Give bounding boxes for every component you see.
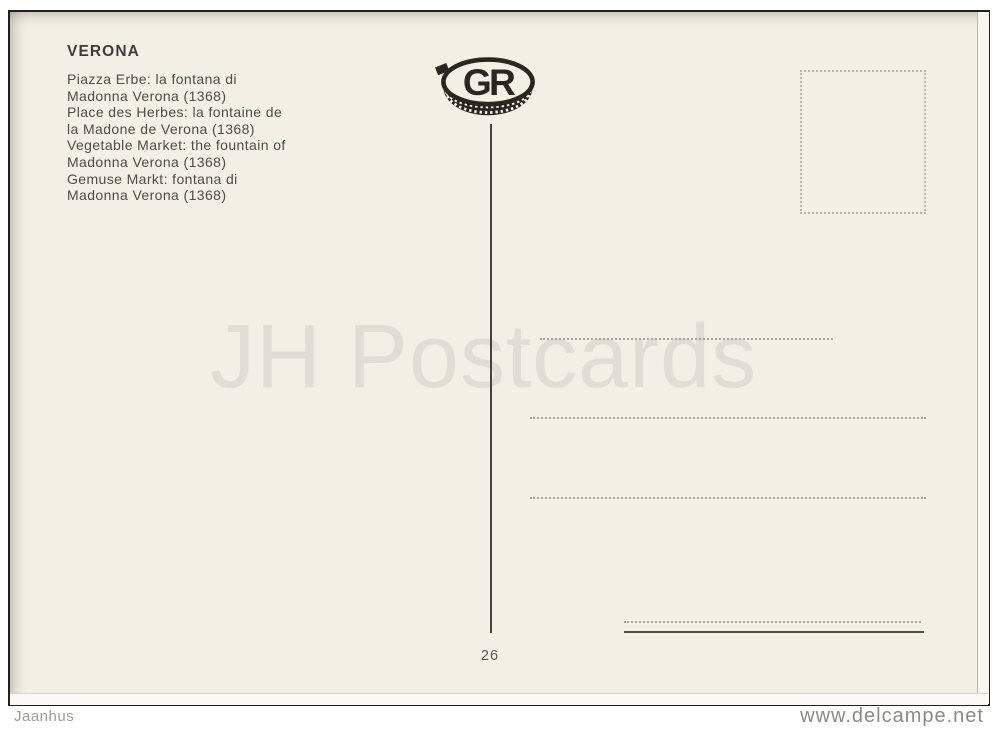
- caption-line-english-2: Madonna Verona (1368): [67, 154, 286, 171]
- address-line-4-dotted: [624, 621, 921, 623]
- card-title: VERONA: [67, 43, 286, 61]
- caption-line-french-1: Place des Herbes: la fontaine de: [67, 104, 286, 121]
- caption-line-italian-2: Madonna Verona (1368): [67, 88, 286, 105]
- caption-line-german-2: Madonna Verona (1368): [67, 187, 286, 204]
- caption-block: VERONA Piazza Erbe: la fontana di Madonn…: [67, 43, 286, 204]
- caption-line-english-1: Vegetable Market: the fountain of: [67, 137, 286, 154]
- publisher-arena-logo-icon: GR: [434, 54, 542, 132]
- scan-gap-bottom: [10, 693, 988, 705]
- center-divider-line: [490, 124, 492, 633]
- address-line-3: [530, 497, 926, 499]
- address-line-4-underline: [624, 631, 924, 633]
- caption-line-german-1: Gemuse Markt: fontana di: [67, 171, 286, 188]
- caption-line-italian-1: Piazza Erbe: la fontana di: [67, 71, 286, 88]
- watermark-text: JH Postcards: [210, 306, 757, 409]
- logo-monogram-letters: GR: [463, 61, 516, 103]
- card-number: 26: [469, 648, 511, 664]
- caption-line-french-2: la Madone de Verona (1368): [67, 121, 286, 138]
- site-url: www.delcampe.net: [800, 705, 984, 728]
- address-line-1: [540, 338, 833, 340]
- postcard-scan: VERONA Piazza Erbe: la fontana di Madonn…: [8, 10, 990, 706]
- scan-gap-right: [977, 12, 989, 704]
- stamp-box: [800, 70, 926, 214]
- seller-name: Jaanhus: [14, 708, 74, 725]
- address-line-2: [530, 417, 926, 419]
